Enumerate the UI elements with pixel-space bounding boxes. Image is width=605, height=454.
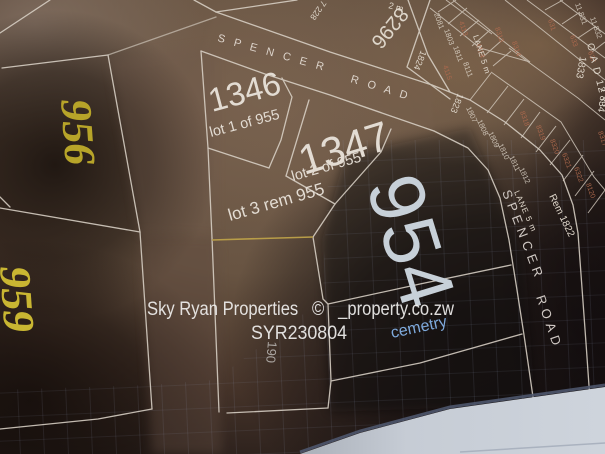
svg-text:190: 190: [263, 341, 280, 364]
svg-text:956: 956: [51, 97, 106, 168]
svg-text:959: 959: [0, 264, 45, 335]
svg-text:SYR230804: SYR230804: [251, 323, 347, 344]
svg-text:Sky Ryan Properties © _pro: Sky Ryan Properties © _property.co.zw: [147, 299, 454, 320]
